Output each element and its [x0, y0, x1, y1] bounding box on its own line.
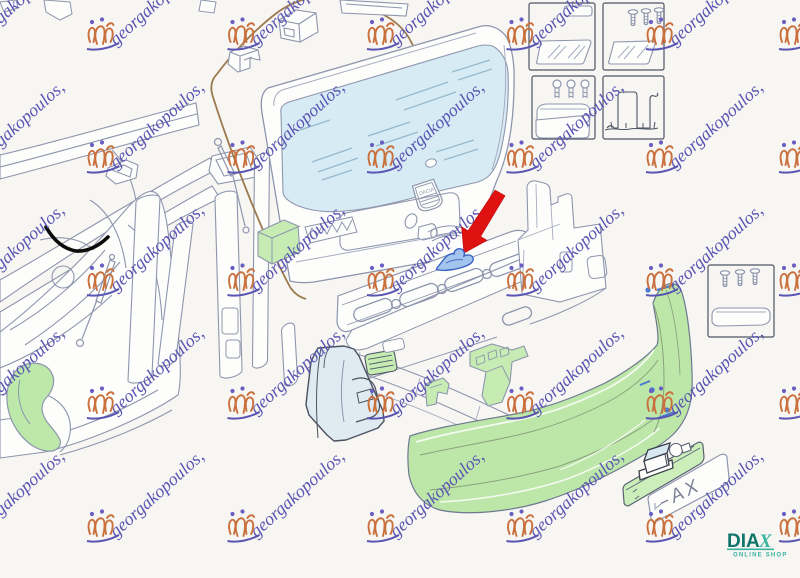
svg-text:ONLINE SHOP: ONLINE SHOP: [733, 553, 788, 559]
